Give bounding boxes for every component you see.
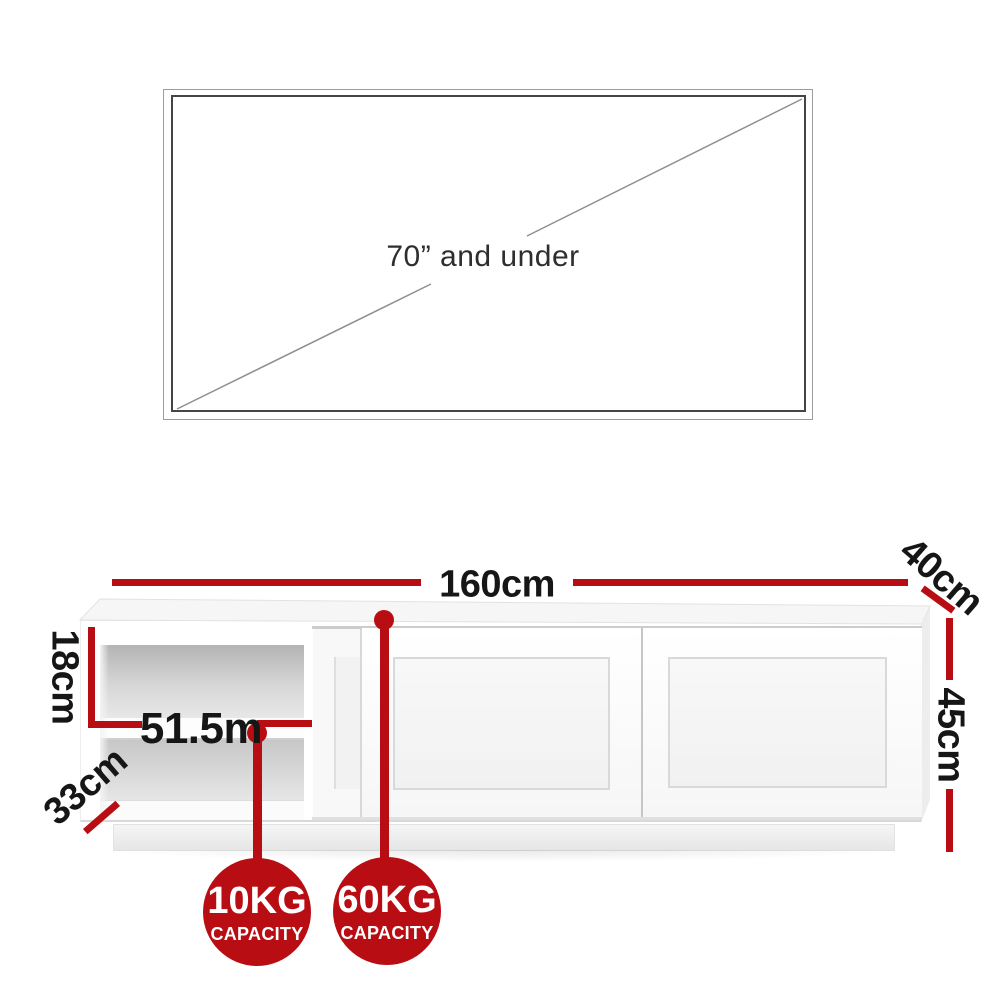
height-dimension-label: 45cm: [929, 687, 972, 782]
shelf-width-dimension-label: 51.5m: [140, 704, 262, 754]
anchor-dot-60kg: [374, 610, 394, 630]
open-shelf-bottom-board: [100, 800, 308, 820]
cabinet-plinth: [113, 824, 895, 851]
shelf-height-dimension-label: 18cm: [43, 629, 86, 724]
shelf-height-bracket-vertical: [88, 627, 95, 728]
capacity-badge-60kg: 60KG CAPACITY: [333, 857, 441, 965]
shelf-width-dimension-line: [257, 720, 312, 727]
height-dimension-line-top: [946, 618, 953, 680]
capacity-badge-60kg-label: CAPACITY: [340, 924, 433, 942]
depth-dimension-label: 40cm: [891, 530, 991, 625]
rear-sliding-door-panel: [334, 657, 360, 789]
width-dimension-line-right: [573, 579, 908, 586]
capacity-badge-10kg-label: CAPACITY: [210, 925, 303, 943]
sliding-door-left-panel: [393, 657, 610, 790]
tv-size-label: 70” and under: [386, 240, 579, 274]
sliding-door-bottom-shadow: [312, 817, 922, 820]
floor-shadow: [95, 850, 905, 862]
capacity-badge-60kg-value: 60KG: [337, 881, 436, 919]
shelf-height-bracket-horizontal: [88, 721, 142, 728]
capacity-badge-10kg: 10KG CAPACITY: [203, 858, 311, 966]
badge-stem-60kg: [380, 620, 389, 859]
height-dimension-line-bottom: [946, 789, 953, 852]
tv-cabinet-dimension-infographic: 10KG CAPACITY 60KG CAPACITY 70” and unde…: [0, 0, 1000, 1000]
width-dimension-label: 160cm: [439, 564, 555, 607]
capacity-badge-10kg-value: 10KG: [207, 882, 306, 920]
width-dimension-line-left: [112, 579, 421, 586]
sliding-door-right-panel: [668, 657, 887, 788]
